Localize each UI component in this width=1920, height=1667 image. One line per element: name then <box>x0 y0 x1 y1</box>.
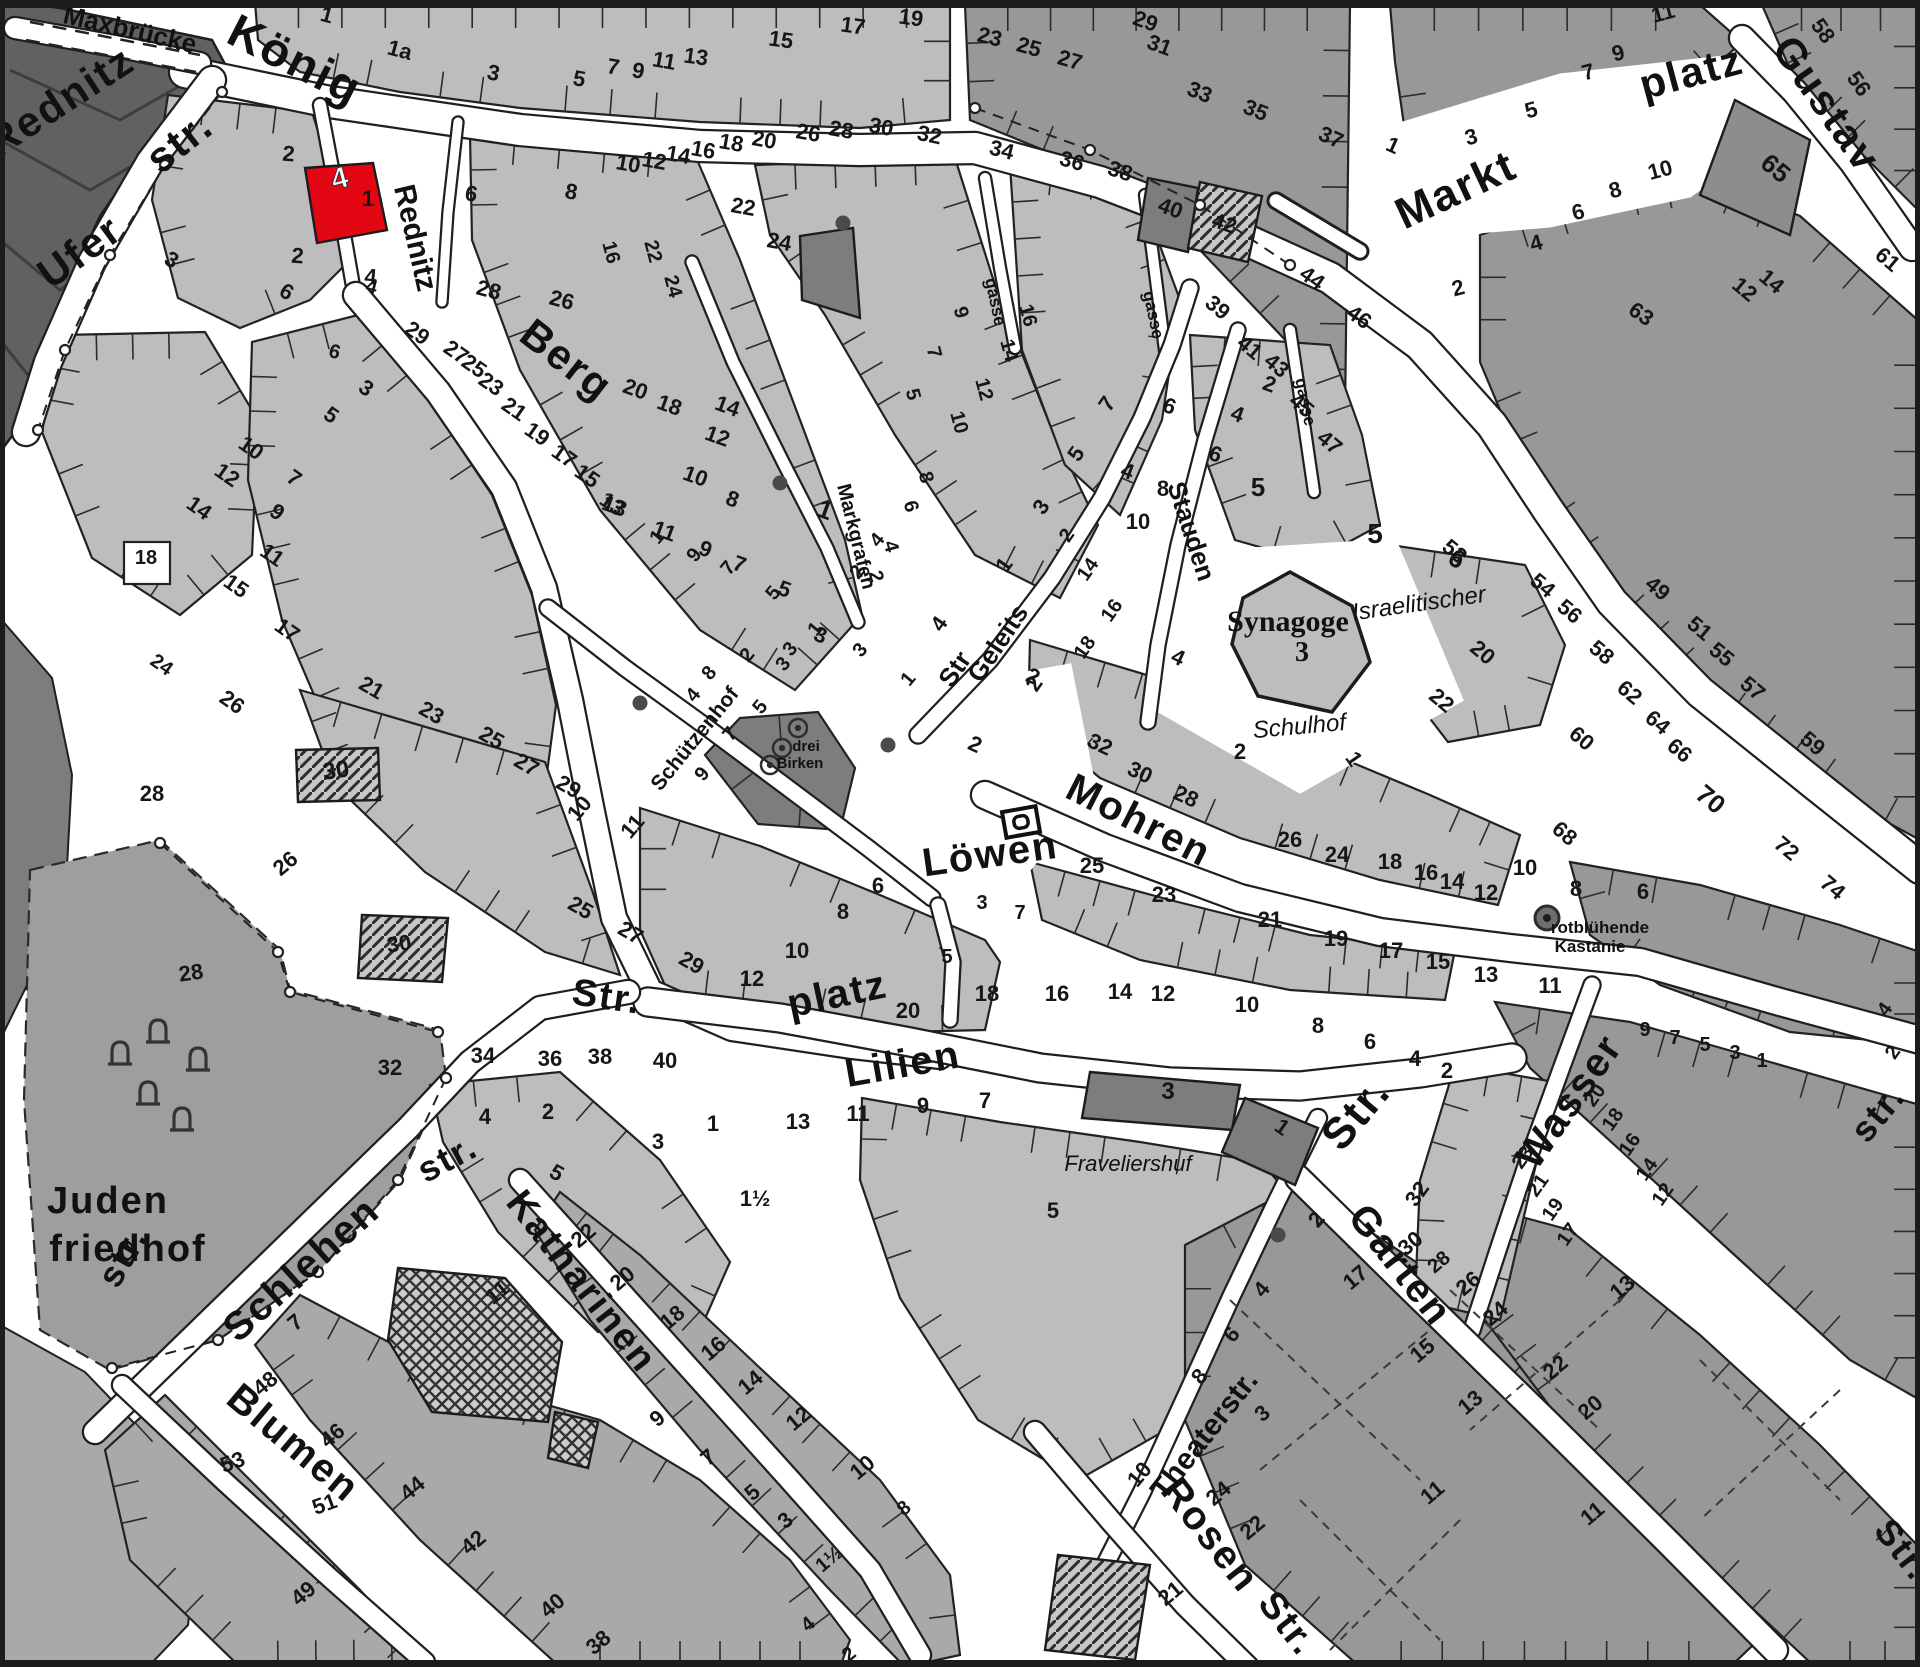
street-label: Juden <box>47 1180 169 1222</box>
house-number: 16 <box>1414 860 1438 885</box>
hatched-bottom <box>1045 1555 1150 1660</box>
house-number: 11 <box>846 1101 869 1126</box>
house-number: 14 <box>1108 979 1133 1004</box>
house-number: 16 <box>1045 981 1069 1006</box>
house-number: 28 <box>827 115 855 144</box>
house-number: 3 <box>1161 1078 1174 1105</box>
house-number: 11 <box>1538 973 1561 998</box>
house-number: 10 <box>1126 509 1150 534</box>
house-number: 30 <box>385 929 413 957</box>
house-number: 6 <box>1637 879 1649 904</box>
house-number: 9 <box>1639 1019 1650 1041</box>
house-number: 20 <box>750 125 778 154</box>
house-number: 18 <box>135 547 157 569</box>
house-number: 19 <box>1324 926 1348 951</box>
house-number: 30 <box>867 112 895 141</box>
house-number: 26 <box>1278 827 1302 852</box>
scan-border-left <box>0 0 5 1667</box>
house-number: 8 <box>1312 1013 1324 1038</box>
house-number: 30 <box>321 755 351 785</box>
house-number: 2 <box>1234 739 1246 764</box>
scan-border-top <box>0 0 1920 8</box>
house-number: 6 <box>1364 1029 1376 1054</box>
house-number: 24 <box>765 227 794 256</box>
house-number: 18 <box>717 128 745 157</box>
house-number: 32 <box>378 1055 402 1080</box>
house-number: 8 <box>837 899 849 924</box>
tree-icon <box>633 696 648 711</box>
house-number: 25 <box>1080 853 1104 878</box>
house-number: 32 <box>915 120 944 150</box>
house-number: 13 <box>786 1109 810 1134</box>
house-number: 16 <box>689 135 717 164</box>
tree-icon <box>773 476 788 491</box>
house-number: 10 <box>1235 992 1259 1017</box>
house-number: 20 <box>896 998 920 1023</box>
house-number: 2 <box>290 243 304 269</box>
house-number: 14 <box>1440 869 1465 894</box>
house-number: 4 <box>479 1104 492 1129</box>
house-number: 18 <box>1378 849 1402 874</box>
street-label: friedhof <box>49 1228 206 1270</box>
house-number: 2 <box>542 1099 554 1124</box>
house-number: 12 <box>1151 981 1175 1006</box>
house-number: 3 <box>1729 1042 1740 1064</box>
house-number: 17 <box>1379 938 1403 963</box>
street-label: rotblühende <box>1551 918 1649 937</box>
street-label: drei <box>792 738 820 755</box>
house-number: 7 <box>1669 1027 1680 1049</box>
house-number: 3 <box>976 892 987 914</box>
house-number: 34 <box>471 1043 496 1068</box>
house-number: 21 <box>1258 907 1282 932</box>
house-number: 8 <box>1157 476 1169 501</box>
house-number: 28 <box>177 958 205 986</box>
street-label: 3 <box>1295 637 1309 668</box>
city-map: MaxbrückeKönigUferstr.RednitzRednitzBerg… <box>0 0 1920 1667</box>
house-number: 10 <box>1513 855 1537 880</box>
house-number: 10 <box>785 938 809 963</box>
house-number: 36 <box>538 1046 562 1071</box>
house-number: 6 <box>872 873 884 898</box>
house-number: 18 <box>975 981 999 1006</box>
house-number: 5 <box>1699 1034 1710 1056</box>
house-number: 12 <box>1474 880 1498 905</box>
house-number: 15 <box>767 25 795 53</box>
scan-border-bottom <box>0 1660 1920 1667</box>
house-number: 15 <box>1426 949 1450 974</box>
street-label: Birken <box>777 755 824 772</box>
house-number: 12 <box>740 966 764 991</box>
house-number: 5 <box>1251 472 1265 502</box>
house-number: 22 <box>729 192 757 221</box>
house-number: 26 <box>794 118 822 147</box>
house-number: 13 <box>682 42 710 70</box>
house-number: 1 <box>707 1111 719 1136</box>
tree-icon <box>1271 1228 1286 1243</box>
house-number: 1 <box>1756 1050 1767 1072</box>
house-number: 13 <box>1474 962 1498 987</box>
city-map-page: MaxbrückeKönigUferstr.RednitzRednitzBerg… <box>0 0 1920 1667</box>
house-number: 17 <box>839 11 867 39</box>
house-number: 40 <box>653 1048 677 1073</box>
house-number: 2 <box>1441 1058 1453 1083</box>
house-number: 3 <box>652 1129 664 1154</box>
house-number: 1 <box>362 186 374 211</box>
house-number: 2 <box>281 141 295 167</box>
street-label: Synagoge <box>1227 605 1349 638</box>
house-number: 23 <box>1152 882 1176 907</box>
house-number: 9 <box>917 1093 929 1118</box>
tree-icon <box>881 738 896 753</box>
house-number: 4 <box>1409 1046 1422 1071</box>
house-number: 24 <box>1325 842 1350 867</box>
scan-border-right <box>1915 0 1920 1667</box>
house-number: 5 <box>1367 518 1383 549</box>
house-number: 7 <box>1014 902 1025 924</box>
house-number: 14 <box>664 140 693 169</box>
house-number: 5 <box>1047 1198 1059 1223</box>
house-number: 11 <box>651 46 678 75</box>
house-number: 7 <box>979 1088 991 1113</box>
house-number: 10 <box>614 149 642 178</box>
crosshatched-small <box>548 1412 598 1468</box>
house-number: 28 <box>140 781 164 806</box>
house-number: 1½ <box>740 1186 771 1211</box>
tree-icon <box>836 216 851 231</box>
street-label: Kastanie <box>1555 937 1626 956</box>
house-number: 38 <box>588 1044 612 1069</box>
street-label: Fraveliershuf <box>1064 1151 1194 1176</box>
house-number: 8 <box>1570 876 1582 901</box>
house-number: 5 <box>941 946 952 968</box>
